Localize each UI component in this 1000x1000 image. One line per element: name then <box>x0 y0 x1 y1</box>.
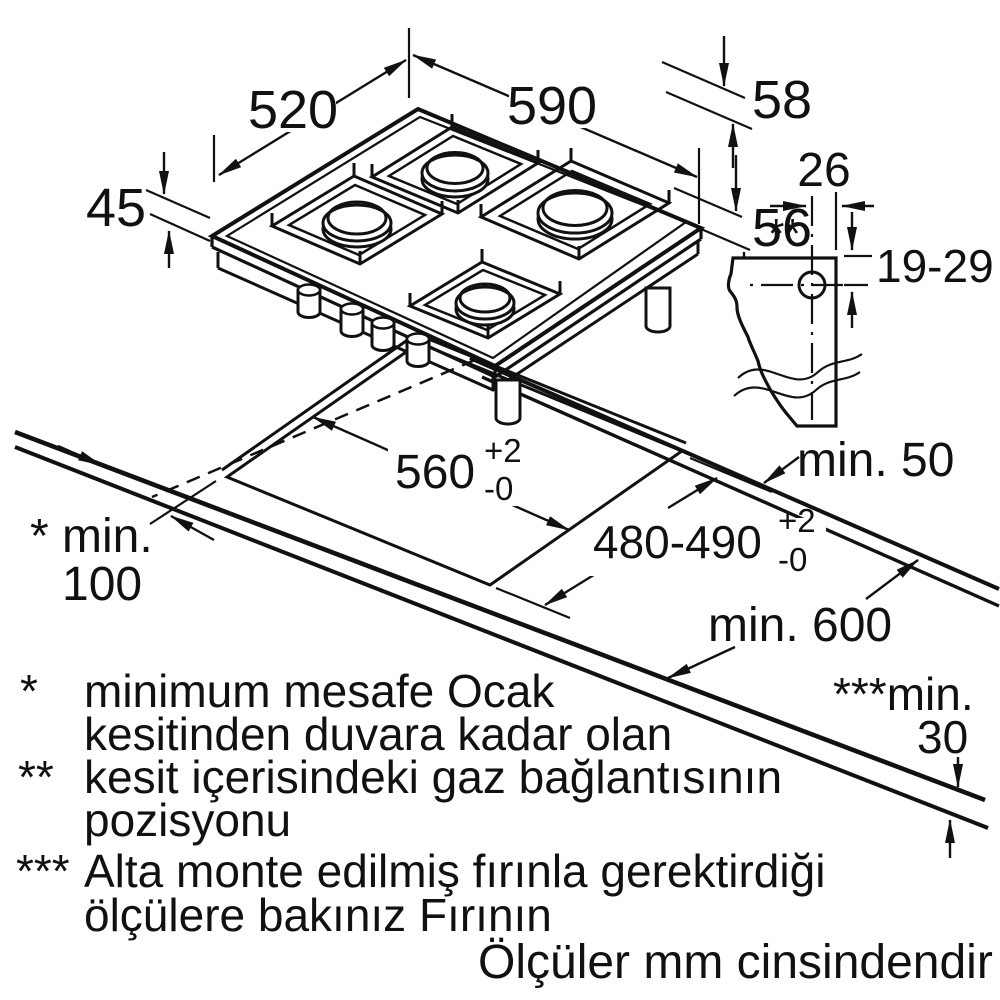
min50-arrow <box>764 457 799 483</box>
dim-520-label: 520 <box>248 80 338 140</box>
min100-label: * min. <box>30 510 153 563</box>
gas-connection-detail: 26 ** 19-29 <box>728 144 993 426</box>
dim-560-tol-minus: -0 <box>484 470 513 507</box>
dim-rear-clearance: min. 50 <box>764 434 954 487</box>
diagram-canvas: 560 +2 -0 480-490 +2 -0 min. 50 min. 600 <box>0 0 1000 1000</box>
dim-480-arrow-upper <box>668 478 717 508</box>
min100-arrow-right <box>171 516 214 540</box>
dim-58-ext-bottom <box>666 92 752 129</box>
dim-590-label: 590 <box>507 76 597 136</box>
min600-label: min. 600 <box>708 599 892 652</box>
dim-480-ext-lower <box>496 588 570 618</box>
dim-480-arrow-lower <box>545 573 597 605</box>
min600-arrow-up <box>866 560 918 599</box>
dim-45-ext-top <box>146 190 210 218</box>
dim-560-tol-plus: +2 <box>484 432 522 469</box>
dim-480-tol-minus: -0 <box>778 541 807 578</box>
hob-drawing: 520 590 58 56 <box>86 28 812 424</box>
min30-value: 30 <box>917 711 968 763</box>
dim-26-label: 26 <box>797 144 850 197</box>
note-star-3: *** <box>16 845 70 897</box>
min50-label: min. 50 <box>797 434 954 487</box>
note-line-6: ölçülere bakınız Fırının <box>84 889 552 941</box>
note-star-1: * <box>20 665 38 717</box>
dim-edge-height: 58 <box>662 36 812 168</box>
dim-58-ext-top <box>662 62 745 98</box>
hob-leg-front <box>496 380 520 424</box>
dim-gas-depth: 19-29 <box>844 212 994 328</box>
dim-worktop-thickness: ***min. 30 <box>833 668 974 858</box>
dim-560-label: 560 <box>395 446 475 499</box>
dim-cutout-width: 560 +2 -0 <box>313 417 569 530</box>
dim-480-label: 480-490 <box>593 516 762 568</box>
dim-58-label: 58 <box>752 70 812 130</box>
units-note: Ölçüler mm cinsindendir <box>478 936 993 989</box>
hob-leg-right <box>646 288 670 332</box>
dim-45-label: 45 <box>86 178 146 238</box>
dim-56-ext-top <box>674 188 742 217</box>
dim-480-tol-plus: +2 <box>778 502 816 539</box>
min100-value: 100 <box>62 558 142 611</box>
dim-1929-label: 19-29 <box>876 240 994 292</box>
installation-diagram-page: 560 +2 -0 480-490 +2 -0 min. 50 min. 600 <box>0 0 1000 1000</box>
note-line-4: pozisyonu <box>84 794 291 846</box>
min100-arrow-left <box>58 446 101 465</box>
note-star-2: ** <box>18 751 54 803</box>
dim-45-ext-bottom <box>150 214 210 241</box>
dim-tray-height: 45 <box>86 152 210 268</box>
gas-marker-label: ** <box>768 210 801 257</box>
dim-cutout-depth: 480-490 +2 -0 <box>496 458 826 618</box>
